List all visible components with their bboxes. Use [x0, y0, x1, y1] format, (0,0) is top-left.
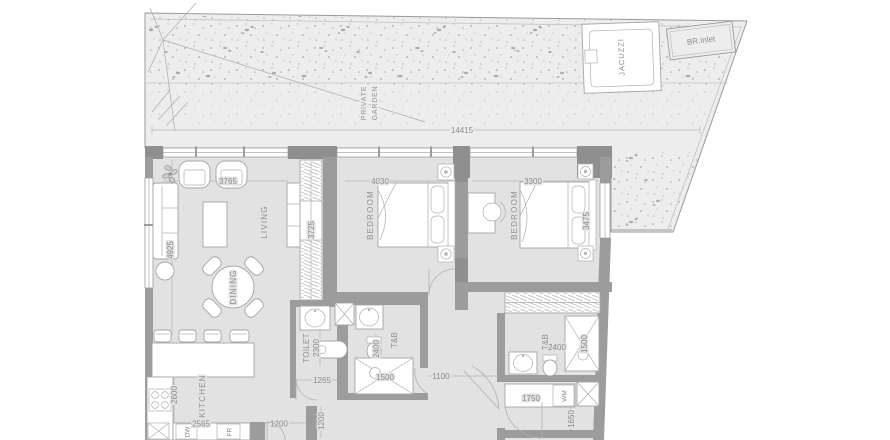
dim-14415: 14415 [451, 126, 474, 135]
garden-label-private: PRIVATE [361, 86, 368, 121]
bathroom-sink [300, 306, 330, 330]
floor-plan: JACUZZI BR.Inlet PRIVATE GARDEN 14415 [0, 0, 890, 440]
kitchen-label: KITCHEN [198, 374, 207, 418]
bar-stool [204, 330, 221, 342]
bath1-label: T&B [390, 332, 399, 348]
dishwasher-label: DW [185, 426, 192, 438]
living-label: LIVING [260, 205, 269, 238]
dim-2565: 2565 [192, 420, 210, 429]
jacuzzi-label: JACUZZI [616, 38, 626, 76]
dim-2400-bath2: 2400 [548, 343, 566, 352]
bathroom-sink [356, 305, 383, 329]
garden-label-garden: GARDEN [372, 86, 379, 121]
ceiling-fan-icon [438, 246, 454, 262]
gas-stove [149, 389, 171, 411]
side-table [156, 262, 174, 280]
washing-machine-label: WM [562, 390, 569, 402]
tv-console [287, 183, 300, 247]
dim-1500-bath1: 1500 [376, 373, 394, 382]
bathroom-sink [509, 352, 537, 374]
dim-1750: 1750 [522, 394, 540, 403]
bedroom2-label: BEDROOM [510, 190, 519, 240]
bar-counter [152, 343, 254, 377]
desk-chair [483, 203, 501, 221]
dim-1500-shower: 1500 [580, 335, 589, 353]
bar-stool [154, 330, 171, 342]
washing-machine: WM [553, 385, 574, 406]
bar-stool [179, 330, 196, 342]
dim-2400-bath1: 2400 [372, 340, 381, 358]
dim-1100: 1100 [432, 372, 450, 381]
dim-3475: 3475 [582, 212, 591, 230]
dim-4925: 4925 [166, 241, 175, 259]
dim-3300: 3300 [524, 177, 542, 186]
dim-2600: 2600 [170, 386, 179, 404]
dim-3725: 3725 [307, 221, 316, 239]
ceiling-fan-icon [578, 164, 593, 179]
dim-1265: 1265 [313, 376, 331, 385]
duct-shaft [577, 382, 599, 406]
dining-label: DINING [229, 269, 238, 304]
kitchen-sink [148, 423, 169, 439]
toilet-label: TOILET [302, 333, 311, 363]
ceiling-fan-icon [578, 246, 593, 261]
fridge: FR [217, 424, 240, 439]
ceiling-fan-icon [438, 164, 454, 180]
walkin-closet [505, 292, 600, 313]
bed [378, 181, 455, 249]
dim-3765: 3765 [219, 177, 237, 186]
wc-toilet [543, 355, 557, 376]
dim-2300: 2300 [312, 339, 321, 357]
dim-1200-hall: 1200 [317, 412, 326, 430]
coffee-table [203, 202, 227, 247]
fridge-label: FR [227, 427, 234, 436]
jacuzzi: JACUZZI [582, 22, 661, 94]
armchair [179, 161, 210, 188]
floor-plan-svg: JACUZZI BR.Inlet PRIVATE GARDEN 14415 [0, 0, 890, 440]
dim-4030: 4030 [371, 177, 389, 186]
bedroom1-label: BEDROOM [366, 190, 375, 240]
duct-shaft [335, 303, 354, 325]
bar-stool [230, 330, 249, 342]
dim-1650: 1650 [567, 410, 576, 428]
jacuzzi-step [585, 50, 597, 63]
